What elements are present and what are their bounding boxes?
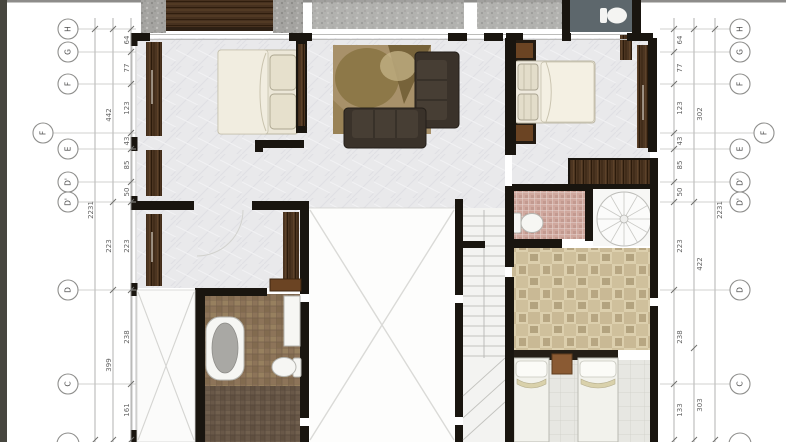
svg-text:D': D' [64,198,73,206]
grid-bubble: C [58,374,78,394]
wall [300,426,309,442]
svg-text:D': D' [736,198,745,206]
svg-text:G: G [64,49,73,55]
dimension-label: 43 [123,137,131,146]
wall [131,33,138,46]
shaft-void [137,290,195,442]
spiral-stair-icon [593,189,651,246]
grid-bubble: E [730,139,750,159]
svg-text:G: G [736,49,745,55]
grid-bubble: D' [730,192,750,212]
grid-bubble: D' [58,192,78,212]
dimension-label: 77 [123,64,131,73]
grid-bubble: D' [58,172,78,192]
dimension-label: 238 [676,330,684,343]
toilet-icon [513,213,543,233]
door-leaf [270,279,301,291]
floor-plan-screenshot: 64 77 123 43 85 50 223 238 161 442 223 3… [0,0,804,442]
wardrobe-wood [570,160,650,184]
grid-bubble: D' [730,172,750,192]
wall [137,201,194,210]
dimension-label: 238 [123,330,131,343]
grid-bubble: F [33,123,53,143]
svg-text:E: E [64,146,73,151]
dimension-label: 223 [123,239,131,252]
grid-bubble: H [730,19,750,39]
wall [650,306,658,442]
single-bed-icon [578,358,618,442]
dimension-label: 161 [123,403,131,416]
grid-bubble: G [730,42,750,62]
dimension-label: 399 [105,358,113,371]
dark-tile-floor [205,386,300,442]
wall [136,33,150,41]
toilet-icon [272,358,301,378]
wall [195,288,205,442]
wall [648,38,657,152]
wardrobe-icon [283,212,299,286]
double-bed-icon [218,50,298,134]
vanity [284,296,300,346]
dimension-label: 64 [123,35,131,44]
deck-edge [166,27,273,31]
wall [650,158,658,298]
wall [455,425,463,442]
grid-bubble: E [58,139,78,159]
grid-bubble: C [730,374,750,394]
dimension-label: 123 [123,101,131,114]
svg-text:H: H [64,26,73,32]
bathtub-icon [206,317,244,380]
mosaic-bathroom-floor [512,191,588,239]
wall [131,430,138,442]
svg-text:E: E [736,146,745,151]
dimension-label: 123 [676,101,684,114]
wall [585,189,593,241]
wall [448,33,467,41]
svg-text:C: C [736,381,745,386]
wall [632,0,641,34]
floor-plan-svg: 64 77 123 43 85 50 223 238 161 442 223 3… [0,0,804,442]
dimension-label: 43 [676,137,684,146]
wall [505,277,514,442]
dimension-label: 303 [696,398,704,411]
dimension-label: 85 [676,161,684,170]
svg-text:F: F [760,131,769,135]
dimension-label: 223 [676,239,684,252]
wardrobe-icon [146,214,162,286]
wall [455,303,463,417]
grid-bubble: F [58,74,78,94]
wall-wood-face [298,44,305,126]
svg-text:D: D [64,287,73,293]
grid-bubble: F [730,74,750,94]
wall [505,186,514,267]
svg-text:D': D' [64,178,73,186]
dimension-label: 133 [676,403,684,416]
wall [131,196,138,210]
svg-text:F: F [39,131,48,135]
grid-bubble: D [730,280,750,300]
dimension-label-total: 2231 [87,201,95,219]
balcony-pillar [141,0,166,33]
dimension-label: 223 [105,239,113,252]
dimension-label: 50 [676,188,684,197]
wall [255,140,263,152]
wall [455,241,485,248]
toilet-icon [600,8,627,24]
scan-left-edge [0,0,7,442]
nightstand [552,354,572,374]
grid-bubble: G [58,42,78,62]
svg-text:H: H [736,26,745,32]
dimension-label: 50 [123,188,131,197]
wood-deck [166,0,273,29]
grid-bubble: F [754,123,774,143]
wall [252,201,308,210]
svg-text:F: F [64,82,73,86]
dimension-label: 64 [676,35,684,44]
balcony-slab [312,0,464,29]
balcony-slab [477,0,562,29]
wall [505,38,516,155]
wardrobe-icon [146,150,162,196]
wall [484,33,503,41]
dimension-label: 77 [676,64,684,73]
dimension-label: 302 [696,107,704,120]
wall [196,288,267,296]
dimension-label: 422 [696,257,704,270]
wall [562,0,570,33]
family-room-floor [512,248,650,350]
svg-text:D': D' [736,178,745,186]
single-bed-icon [514,358,549,442]
grid-bubble: D [58,280,78,300]
grid-bubble: H [58,19,78,39]
wall [562,33,571,41]
svg-text:D: D [736,287,745,293]
dimension-label: 442 [105,108,113,121]
svg-text:F: F [736,82,745,86]
dimension-label: 85 [123,161,131,170]
wardrobe-icon [146,42,162,136]
balcony-pillar [273,0,303,33]
floor-plan [131,0,659,442]
dimension-label-total: 2231 [716,201,724,219]
svg-text:C: C [64,381,73,386]
